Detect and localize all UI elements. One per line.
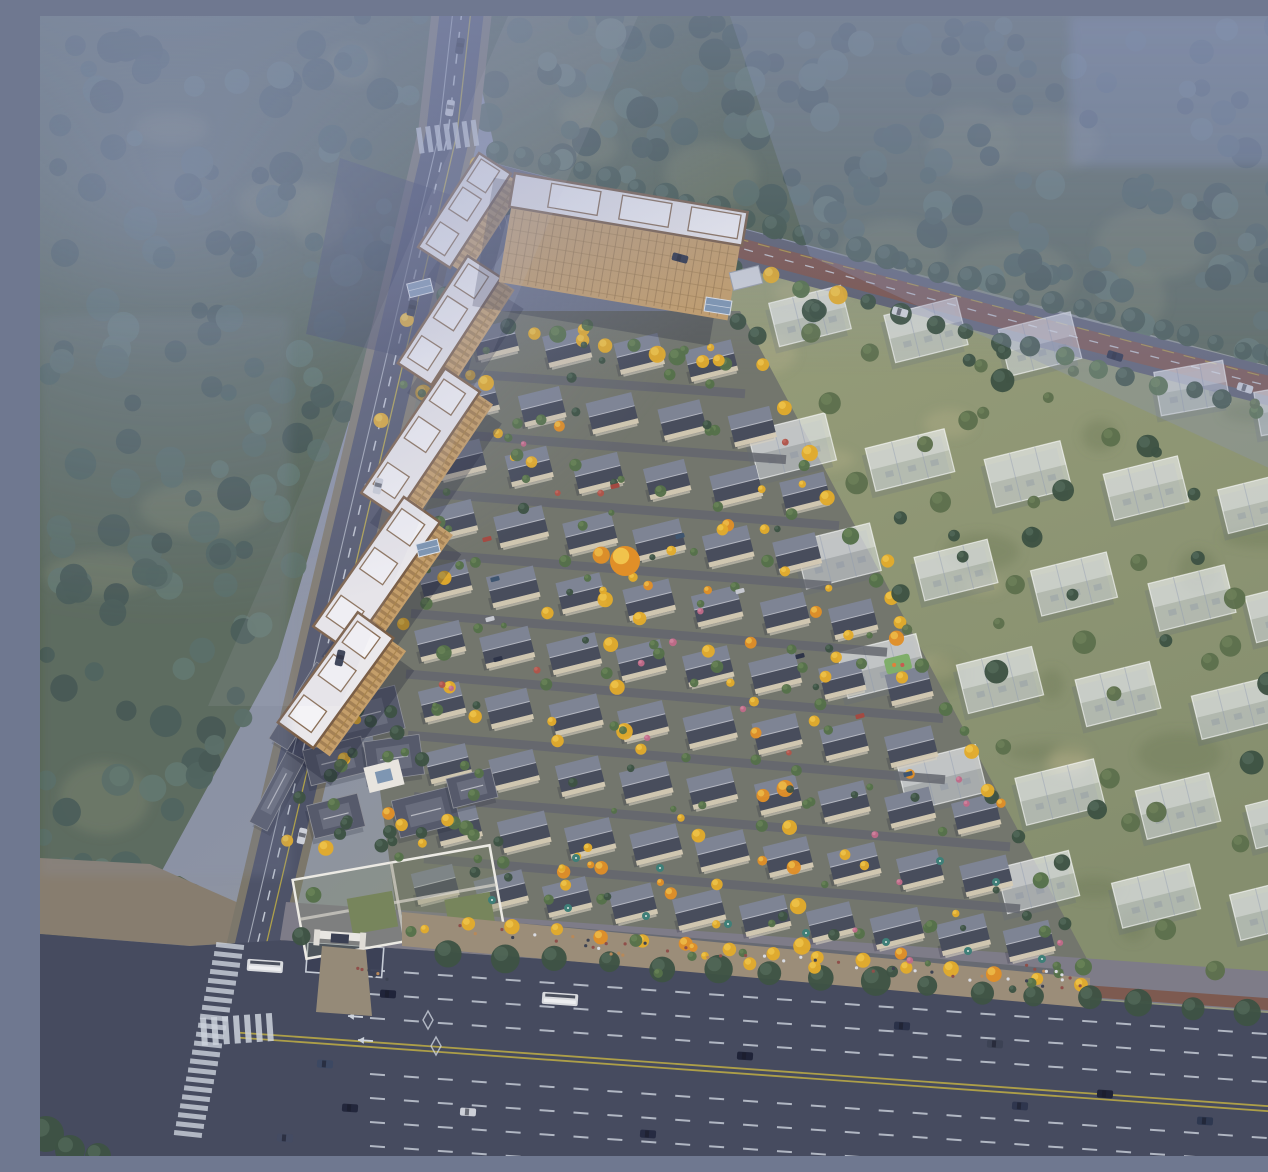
car xyxy=(1012,1101,1029,1110)
car xyxy=(1097,1089,1114,1098)
bus xyxy=(247,959,284,973)
aerial-site-rendering: Aerial bird's-eye rendering of a residen… xyxy=(40,16,1268,1156)
car xyxy=(987,1039,1004,1048)
car xyxy=(1197,1116,1214,1125)
car xyxy=(460,1107,477,1116)
rendering-canvas xyxy=(40,16,1268,1156)
car xyxy=(342,1103,359,1112)
car xyxy=(894,1021,911,1030)
car xyxy=(277,1133,294,1142)
car xyxy=(640,1129,657,1138)
fog-corner xyxy=(1070,16,1268,166)
fog-left xyxy=(40,316,290,876)
car xyxy=(317,1059,334,1068)
car xyxy=(737,1051,754,1060)
car xyxy=(380,989,397,998)
bus xyxy=(542,992,579,1006)
